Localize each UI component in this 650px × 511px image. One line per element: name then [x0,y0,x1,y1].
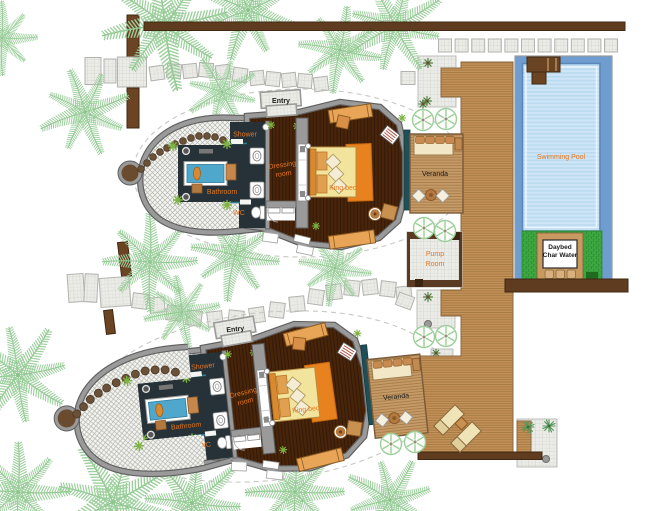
svg-text:WC: WC [233,210,245,217]
svg-text:Veranda: Veranda [422,171,448,178]
svg-text:Daybed: Daybed [548,244,572,251]
svg-text:Char Water: Char Water [543,252,578,259]
svg-text:Swimming Pool: Swimming Pool [537,154,586,161]
svg-text:Room: Room [426,261,445,268]
svg-text:Shower: Shower [233,132,257,139]
svg-text:Entry: Entry [272,98,290,105]
svg-text:Bathroom: Bathroom [207,189,238,196]
svg-text:King bed: King bed [329,185,357,192]
svg-text:Pump: Pump [426,251,444,258]
